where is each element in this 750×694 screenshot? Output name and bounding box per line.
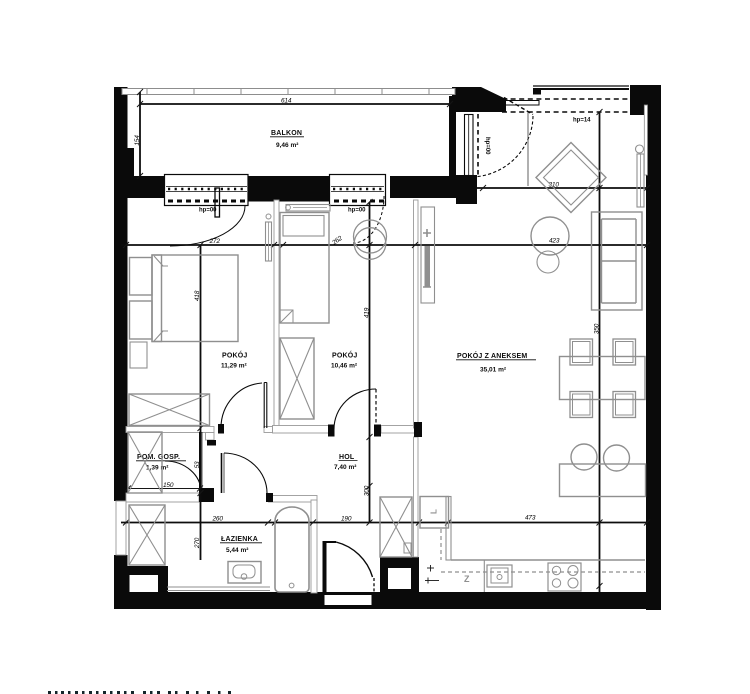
- svg-text:190: 190: [341, 516, 352, 523]
- svg-text:53: 53: [194, 461, 201, 468]
- svg-text:7,40 m²: 7,40 m²: [334, 464, 357, 471]
- svg-text:270: 270: [194, 537, 201, 549]
- svg-text:473: 473: [525, 515, 536, 522]
- svg-text:272: 272: [209, 238, 221, 245]
- svg-text:35,01 m²: 35,01 m²: [480, 367, 507, 374]
- svg-text:POKÓJ: POKÓJ: [222, 351, 248, 360]
- svg-text:HOL: HOL: [339, 454, 355, 461]
- svg-text:150: 150: [163, 482, 174, 489]
- svg-text:614: 614: [281, 98, 292, 105]
- svg-text:300: 300: [363, 485, 370, 496]
- svg-text:11,29 m²: 11,29 m²: [221, 363, 247, 370]
- svg-text:hp=00: hp=00: [348, 208, 366, 214]
- svg-text:L: L: [430, 509, 439, 514]
- svg-text:5,44 m²: 5,44 m²: [226, 547, 249, 554]
- svg-text:423: 423: [549, 238, 560, 245]
- svg-text:hp=14: hp=14: [573, 118, 591, 124]
- svg-text:154: 154: [134, 135, 141, 146]
- svg-text:260: 260: [212, 516, 224, 523]
- svg-text:ŁAZIENKA: ŁAZIENKA: [221, 536, 258, 543]
- svg-text:418: 418: [194, 290, 201, 301]
- svg-text:POKÓJ Z ANEKSEM: POKÓJ Z ANEKSEM: [457, 351, 527, 360]
- svg-text:Z: Z: [464, 574, 470, 584]
- svg-text:350: 350: [593, 323, 600, 334]
- svg-text:9,46 m²: 9,46 m²: [276, 142, 299, 149]
- svg-text:POKÓJ: POKÓJ: [332, 351, 358, 360]
- svg-text:hp=00: hp=00: [484, 137, 490, 155]
- svg-text:hp=00: hp=00: [199, 208, 217, 214]
- svg-text:BALKON: BALKON: [271, 130, 302, 137]
- svg-text:10,46 m²: 10,46 m²: [331, 363, 358, 370]
- svg-text:419: 419: [363, 307, 370, 318]
